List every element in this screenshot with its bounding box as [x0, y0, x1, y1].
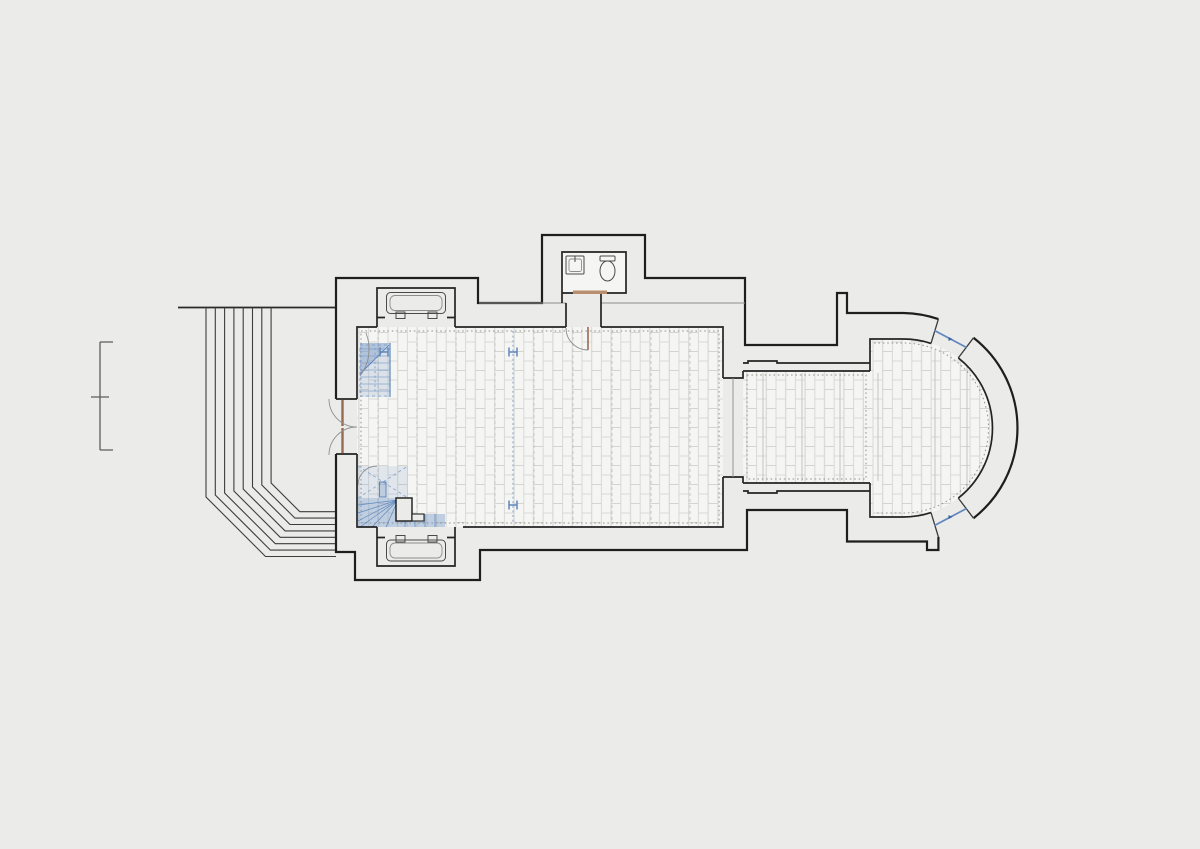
apse-floor	[870, 339, 993, 517]
nave-floor	[357, 327, 723, 527]
scale-bar	[91, 342, 113, 450]
niche-north	[377, 288, 455, 327]
chancel-floor	[743, 371, 870, 483]
entrance-steps	[178, 308, 336, 557]
floor-plan-page	[0, 0, 1200, 849]
radiator-south	[387, 536, 446, 562]
wc-door-threshold	[573, 291, 607, 295]
niche-south	[377, 527, 455, 566]
stair-south-door-leaf	[380, 482, 387, 497]
floors	[357, 252, 993, 527]
radiator-north	[387, 293, 446, 319]
wc-floor	[562, 252, 626, 293]
west-double-door	[329, 399, 357, 455]
floor-plan-drawing	[0, 0, 1200, 849]
